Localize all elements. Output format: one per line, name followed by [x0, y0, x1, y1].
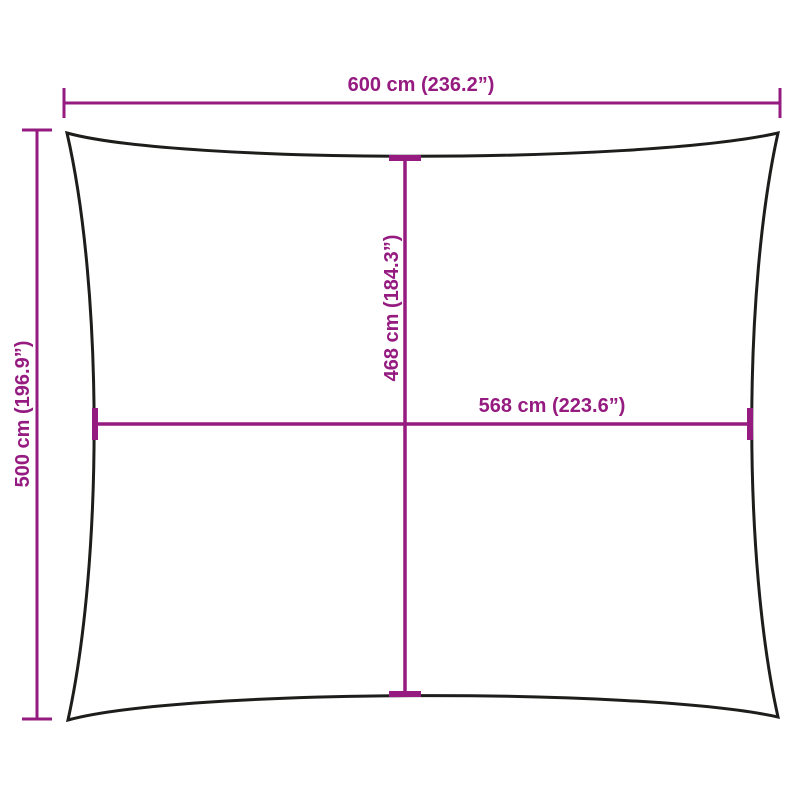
top-width-label: 600 cm (236.2”): [348, 75, 495, 95]
diagram-graphics: [0, 0, 800, 800]
product-dimension-diagram: 600 cm (236.2”) 500 cm (196.9”) 468 cm (…: [0, 0, 800, 800]
side-height-label: 500 cm (196.9”): [13, 341, 33, 488]
inner-height-label: 468 cm (184.3”): [382, 235, 402, 382]
shade-sail-outline: [67, 133, 778, 720]
inner-width-label: 568 cm (223.6”): [479, 396, 626, 416]
